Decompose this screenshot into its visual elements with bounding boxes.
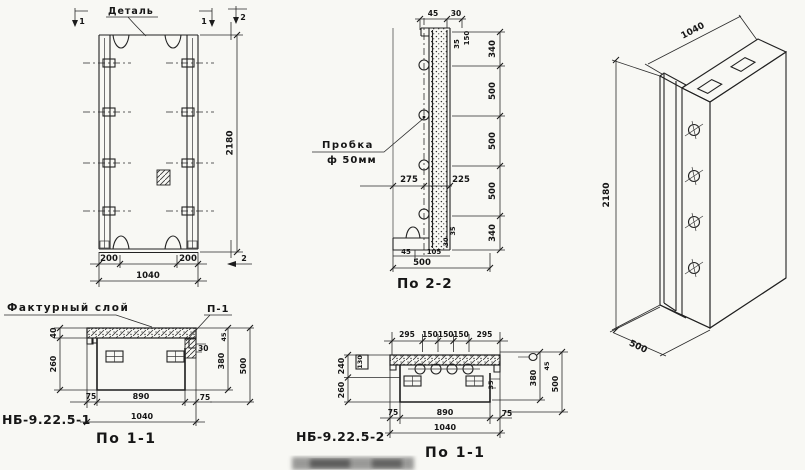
section-1-1-caption: По 1-1 — [96, 431, 157, 447]
dim-500: 500 — [551, 375, 560, 392]
dim-v-4: 340 — [488, 224, 498, 242]
dim-facing: 40 — [49, 327, 58, 339]
section-1-1-b-view: 295 150 150 150 295 240 260 130 35 — [296, 330, 568, 461]
iso-dim-width: 1040 — [680, 21, 707, 42]
dim-bot-2: 105 — [427, 248, 442, 256]
plug-diameter-label: ф 50мм — [327, 154, 377, 166]
dim-1040: 1040 — [131, 412, 154, 421]
dim-75-left: 75 — [388, 408, 398, 417]
dim-top-4: 150 — [463, 31, 471, 46]
dim-v-2: 500 — [488, 132, 498, 150]
dim-bot-1: 45 — [401, 248, 411, 256]
section-2-2-caption: По 2-2 — [397, 276, 453, 292]
iso-dim-height: 2180 — [602, 182, 612, 207]
marker-label: 2 — [240, 13, 246, 22]
dim-45: 45 — [543, 361, 551, 371]
joint-p1-label: П-1 — [207, 304, 229, 315]
facing-layer — [87, 328, 196, 338]
marker-label: 1 — [79, 17, 85, 26]
dim-75-right: 75 — [200, 393, 210, 402]
iso-dim-depth: 500 — [627, 339, 648, 356]
panel-working-drawing: Деталь 1 1 2 2 2180 200 200 1040 — [0, 0, 805, 470]
front-elevation-view: Деталь 1 1 2 2 2180 200 200 1040 — [72, 6, 252, 287]
dim-body: 260 — [49, 355, 58, 372]
dim-v-1: 500 — [488, 82, 498, 100]
dim-height: 2180 — [226, 130, 236, 155]
dim-130: 130 — [356, 355, 364, 369]
section-1-1-a-view: Фактурный слой П-1 30 40 260 45 380 500 … — [2, 302, 254, 447]
isometric-view: 1040 2180 500 — [602, 15, 786, 356]
texture-layer-label: Фактурный слой — [7, 302, 129, 314]
dim-bot-4: 35 — [449, 226, 457, 236]
section-marker-1-right: 1 — [199, 8, 215, 27]
dim-380: 380 — [529, 369, 538, 386]
dim-35: 35 — [487, 380, 495, 390]
dim-top-2: 150 — [438, 330, 454, 339]
concrete-wall — [431, 28, 448, 250]
dim-depth: 500 — [413, 258, 431, 268]
dim-top-1: 150 — [422, 330, 438, 339]
panel-mark: НБ-9.22.5-2 — [296, 429, 385, 444]
joint-p1-connector — [185, 339, 196, 358]
dim-380: 380 — [217, 352, 226, 369]
dim-top-3: 150 — [453, 330, 469, 339]
section-marker-1-left: 1 — [72, 8, 88, 27]
dim-width: 1040 — [136, 271, 160, 281]
marker-label: 2 — [241, 254, 247, 263]
facing-layer — [390, 355, 500, 365]
void-channels — [106, 351, 184, 362]
dim-500: 500 — [239, 357, 248, 374]
panel-mark: НБ-9.22.5-1 — [2, 412, 91, 427]
dim-top-0: 295 — [399, 330, 415, 339]
dim-v-3: 500 — [488, 182, 498, 200]
marker-label: 1 — [201, 17, 207, 26]
dim-top-4: 295 — [477, 330, 493, 339]
dim-mid-right: 225 — [452, 175, 470, 185]
dim-75-left: 75 — [86, 392, 96, 401]
dim-v-0: 340 — [488, 40, 498, 58]
dim-right-offset: 200 — [179, 254, 197, 264]
dim-260: 260 — [337, 381, 346, 398]
dim-240: 240 — [337, 357, 346, 374]
dim-bot-3: 30 — [442, 237, 450, 247]
scan-artifact — [292, 457, 414, 470]
dim-75-right: 75 — [502, 409, 512, 418]
dim-890: 890 — [133, 392, 150, 401]
dim-1040: 1040 — [434, 423, 457, 432]
section-2-2-view: Пробка ф 50мм 45 30 35 150 340 500 500 5… — [312, 9, 505, 292]
dim-top-3: 35 — [453, 39, 461, 49]
dim-top-2: 30 — [451, 9, 461, 18]
plug-label: Пробка — [322, 139, 374, 151]
detail-label: Деталь — [108, 6, 154, 17]
dim-top-1: 45 — [428, 9, 438, 18]
joint-plates — [83, 59, 214, 215]
edge-plugs — [685, 121, 703, 277]
dim-45: 45 — [220, 332, 228, 342]
dim-mid-left: 275 — [400, 175, 418, 185]
dim-30: 30 — [198, 344, 208, 353]
drawing-sheet: Деталь 1 1 2 2 2180 200 200 1040 — [0, 0, 805, 470]
section-marker-2-bottom: 2 — [227, 240, 252, 267]
void-channels — [404, 376, 483, 386]
section-1-1-caption: По 1-1 — [425, 445, 486, 461]
dim-890: 890 — [437, 408, 454, 417]
embedded-detail — [157, 170, 170, 185]
dim-left-offset: 200 — [100, 254, 118, 264]
